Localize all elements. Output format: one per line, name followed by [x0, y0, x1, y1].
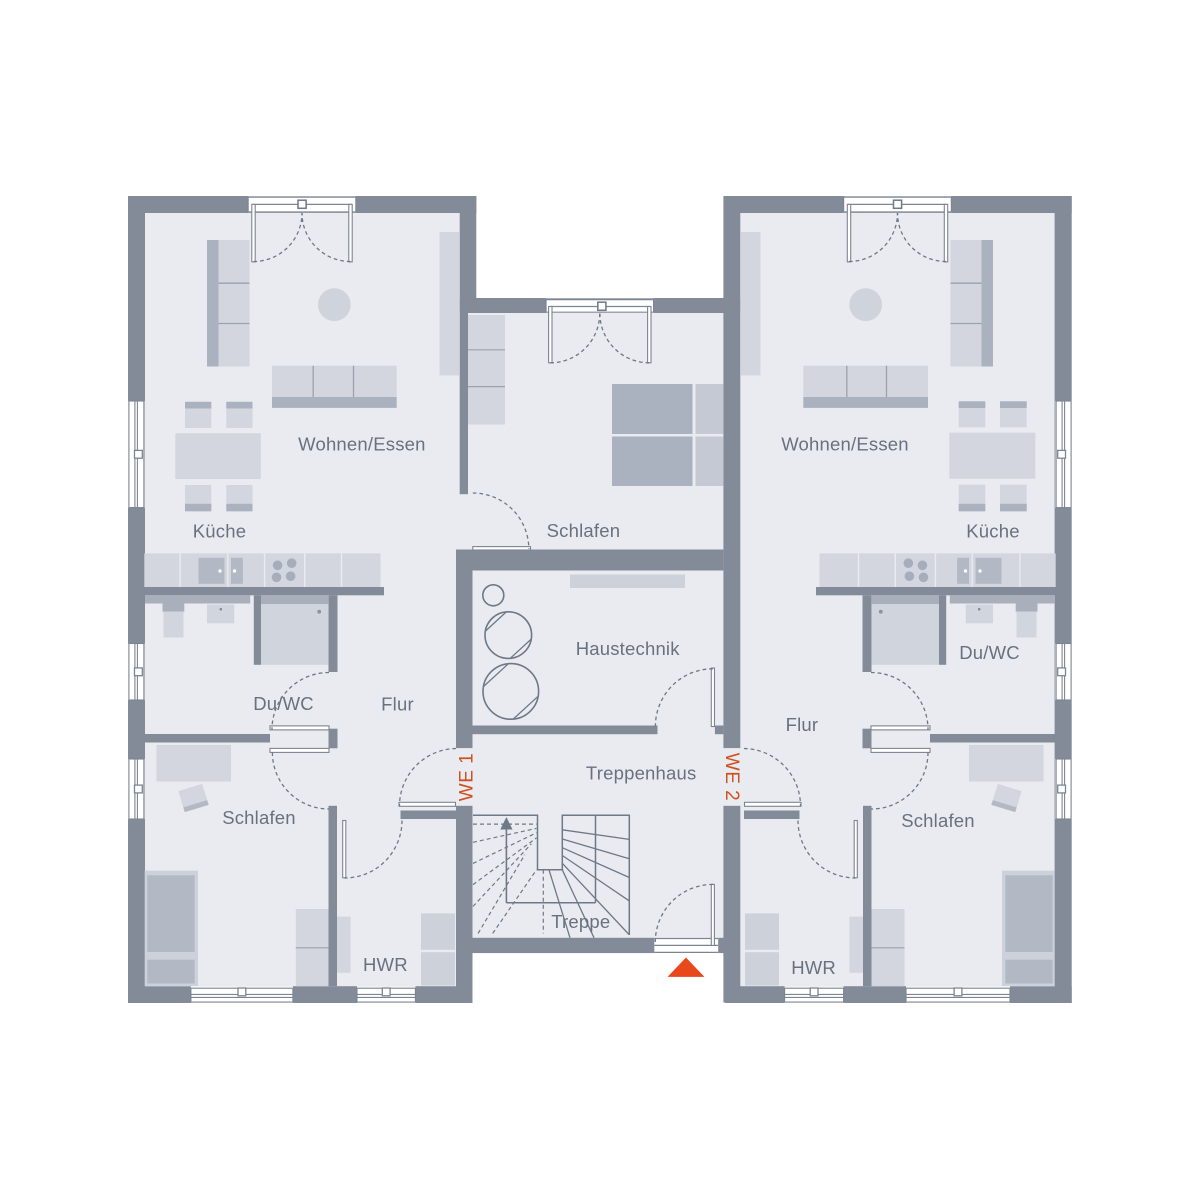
svg-text:HWR: HWR [363, 954, 408, 975]
svg-text:HWR: HWR [791, 957, 836, 978]
svg-text:Schlafen: Schlafen [901, 810, 975, 831]
svg-text:Treppenhaus: Treppenhaus [586, 763, 697, 784]
svg-text:Schlafen: Schlafen [547, 520, 621, 541]
svg-text:Küche: Küche [193, 521, 246, 542]
svg-text:WE 1: WE 1 [456, 753, 477, 801]
svg-text:Wohnen/Essen: Wohnen/Essen [781, 433, 909, 454]
svg-text:Du/WC: Du/WC [253, 693, 314, 714]
svg-text:Flur: Flur [786, 714, 819, 735]
svg-text:Du/WC: Du/WC [959, 642, 1020, 663]
svg-text:Treppe: Treppe [551, 911, 610, 932]
svg-text:Küche: Küche [966, 521, 1019, 542]
svg-text:Wohnen/Essen: Wohnen/Essen [298, 433, 426, 454]
svg-text:Flur: Flur [381, 694, 414, 715]
svg-text:Schlafen: Schlafen [222, 807, 296, 828]
svg-text:Haustechnik: Haustechnik [576, 638, 681, 659]
svg-text:WE 2: WE 2 [721, 753, 742, 801]
